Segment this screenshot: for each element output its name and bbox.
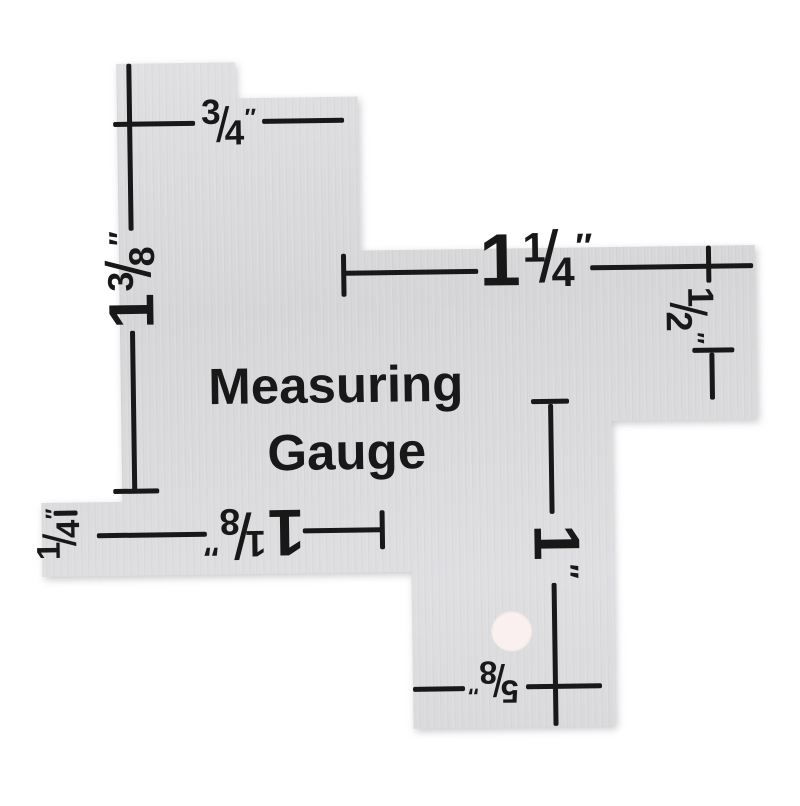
label-inch-mark: ″ — [680, 332, 708, 343]
label-fraction-slash: / — [538, 222, 558, 295]
gauge-title-line1: Measuring — [208, 358, 464, 413]
quarter-inch-tick — [54, 511, 78, 516]
measurement-label-three-quarter-inch: 3/4″ — [201, 94, 256, 152]
one-and-eighth-end-tick — [380, 510, 386, 549]
left-scale-end-tick — [113, 488, 159, 494]
measurement-label-one-and-quarter-inch: 11/4″ — [479, 222, 591, 298]
measurement-label-five-eighths-inch: 5/8″ — [469, 655, 519, 708]
label-fraction-slash: / — [37, 534, 83, 547]
label-fraction-slash: / — [661, 302, 712, 316]
measurement-label-one-and-eighth-inch: 11/8″ — [205, 499, 305, 567]
label-inch-mark: ″ — [205, 527, 219, 563]
five-eighths-line-left — [413, 686, 465, 692]
half-inch-line-lower — [709, 353, 715, 400]
label-fraction-slash: / — [493, 657, 506, 702]
label-inch-mark: ″ — [550, 564, 585, 578]
half-inch-line-upper — [706, 246, 712, 283]
label-inch-mark: ″ — [575, 227, 591, 267]
measurement-label-one-inch: 1″ — [524, 524, 590, 578]
label-inch-mark: ″ — [102, 232, 137, 246]
label-whole: 1 — [524, 524, 589, 560]
label-fraction-slash: / — [234, 502, 252, 567]
label-fraction-slash: / — [216, 101, 230, 150]
label-whole: 1 — [479, 223, 520, 298]
label-fraction-slash: / — [98, 261, 161, 279]
label-whole: 1 — [268, 500, 305, 566]
measurement-label-one-three-eighths-inch: 13/8″ — [98, 232, 164, 329]
label-whole: 1 — [99, 293, 163, 329]
five-eighths-line-right — [526, 683, 602, 689]
label-inch-mark: ″ — [244, 105, 255, 132]
gauge-title-line2: Gauge — [267, 425, 426, 478]
measurement-label-quarter-inch: 1/4″ — [32, 509, 85, 560]
gauge-body: 3/4″ 13/8″ 11/4″ 1/2″ Measuring Gauge 1/… — [0, 0, 800, 806]
product-photo-measuring-gauge: 3/4″ 13/8″ 11/4″ 1/2″ Measuring Gauge 1/… — [0, 0, 800, 800]
measurement-label-half-inch: 1/2″ — [659, 287, 719, 344]
label-inch-mark: ″ — [469, 674, 479, 699]
